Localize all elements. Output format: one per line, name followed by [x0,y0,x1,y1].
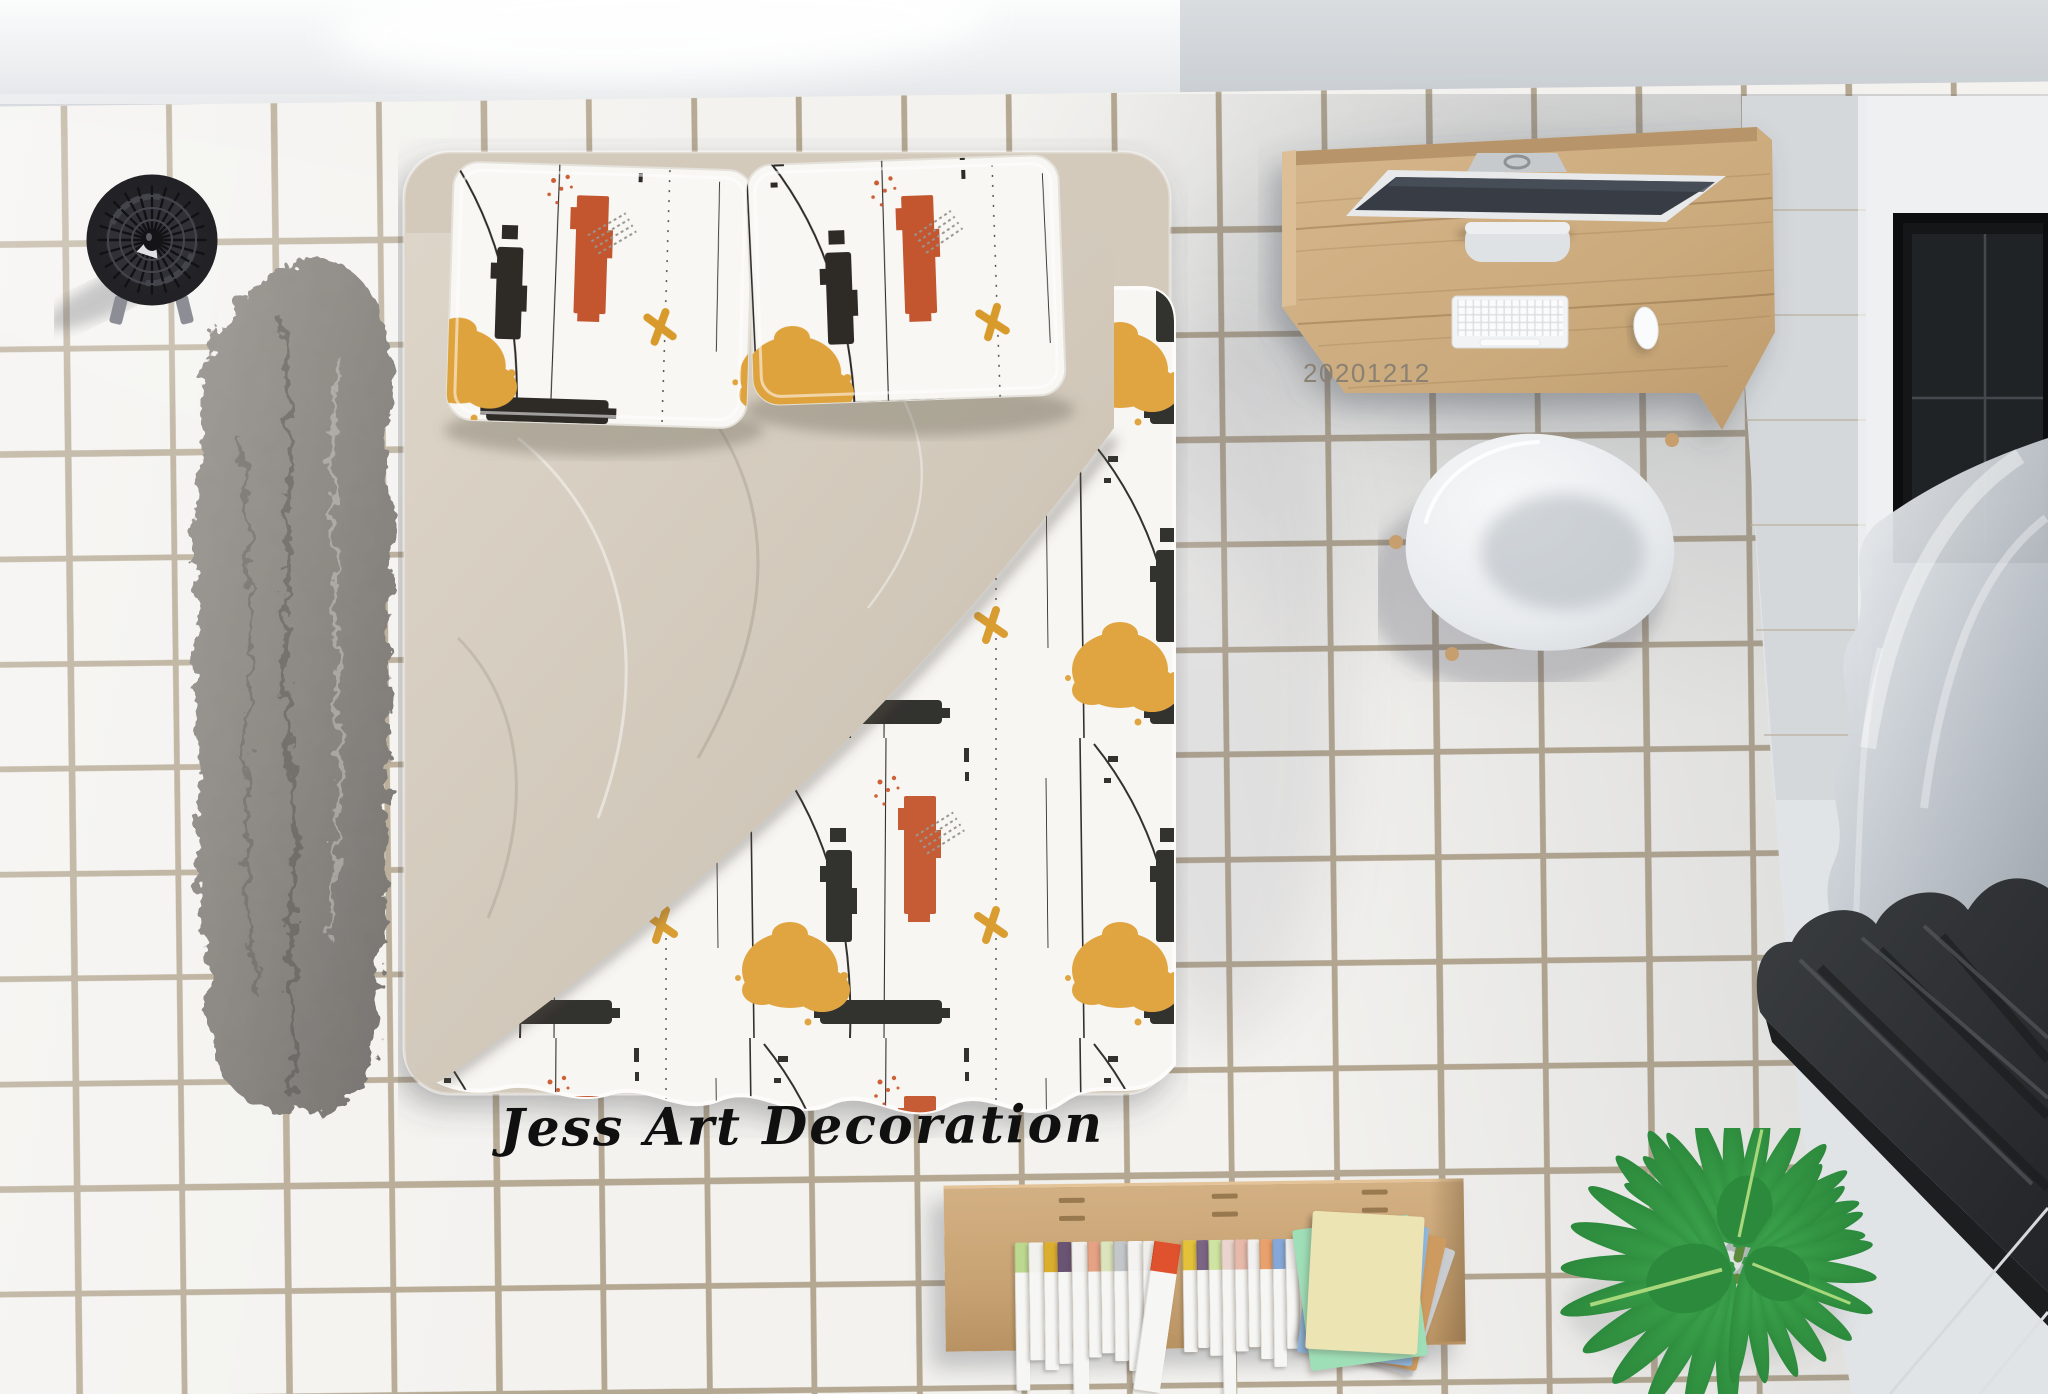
pillow-left [446,161,754,428]
bed [398,138,1188,1138]
joinery-slot [1059,1216,1085,1221]
joinery-slot [1362,1207,1388,1212]
chair-leg [1389,535,1403,549]
paper-sheet [1305,1211,1425,1355]
paper-stack [1296,1212,1473,1389]
desk-left-rim [1282,150,1296,307]
watermark: Jess Art Decoration [500,1092,1060,1168]
chair-seat-depression [1481,494,1645,610]
pillow-right [746,155,1066,406]
book [1028,1242,1045,1360]
bookshelf-books [1014,1238,1316,1394]
keyboard [1452,296,1568,348]
monstera-plant [1545,1128,1925,1394]
desk-date-label: 20201212 [1303,358,1431,388]
joinery-slot [1059,1198,1085,1203]
joinery-slot [1212,1194,1238,1199]
chair-leg [1445,647,1459,661]
bookshelf [944,1178,1467,1394]
chair-leg [1665,433,1679,447]
desk-chair [1378,412,1708,682]
bedroom-scene: Jess Art Decoration [0,0,2048,1394]
joinery-slot [1212,1212,1238,1217]
joinery-slot [1362,1189,1388,1194]
cage-fan [54,148,264,358]
book [1182,1240,1198,1352]
